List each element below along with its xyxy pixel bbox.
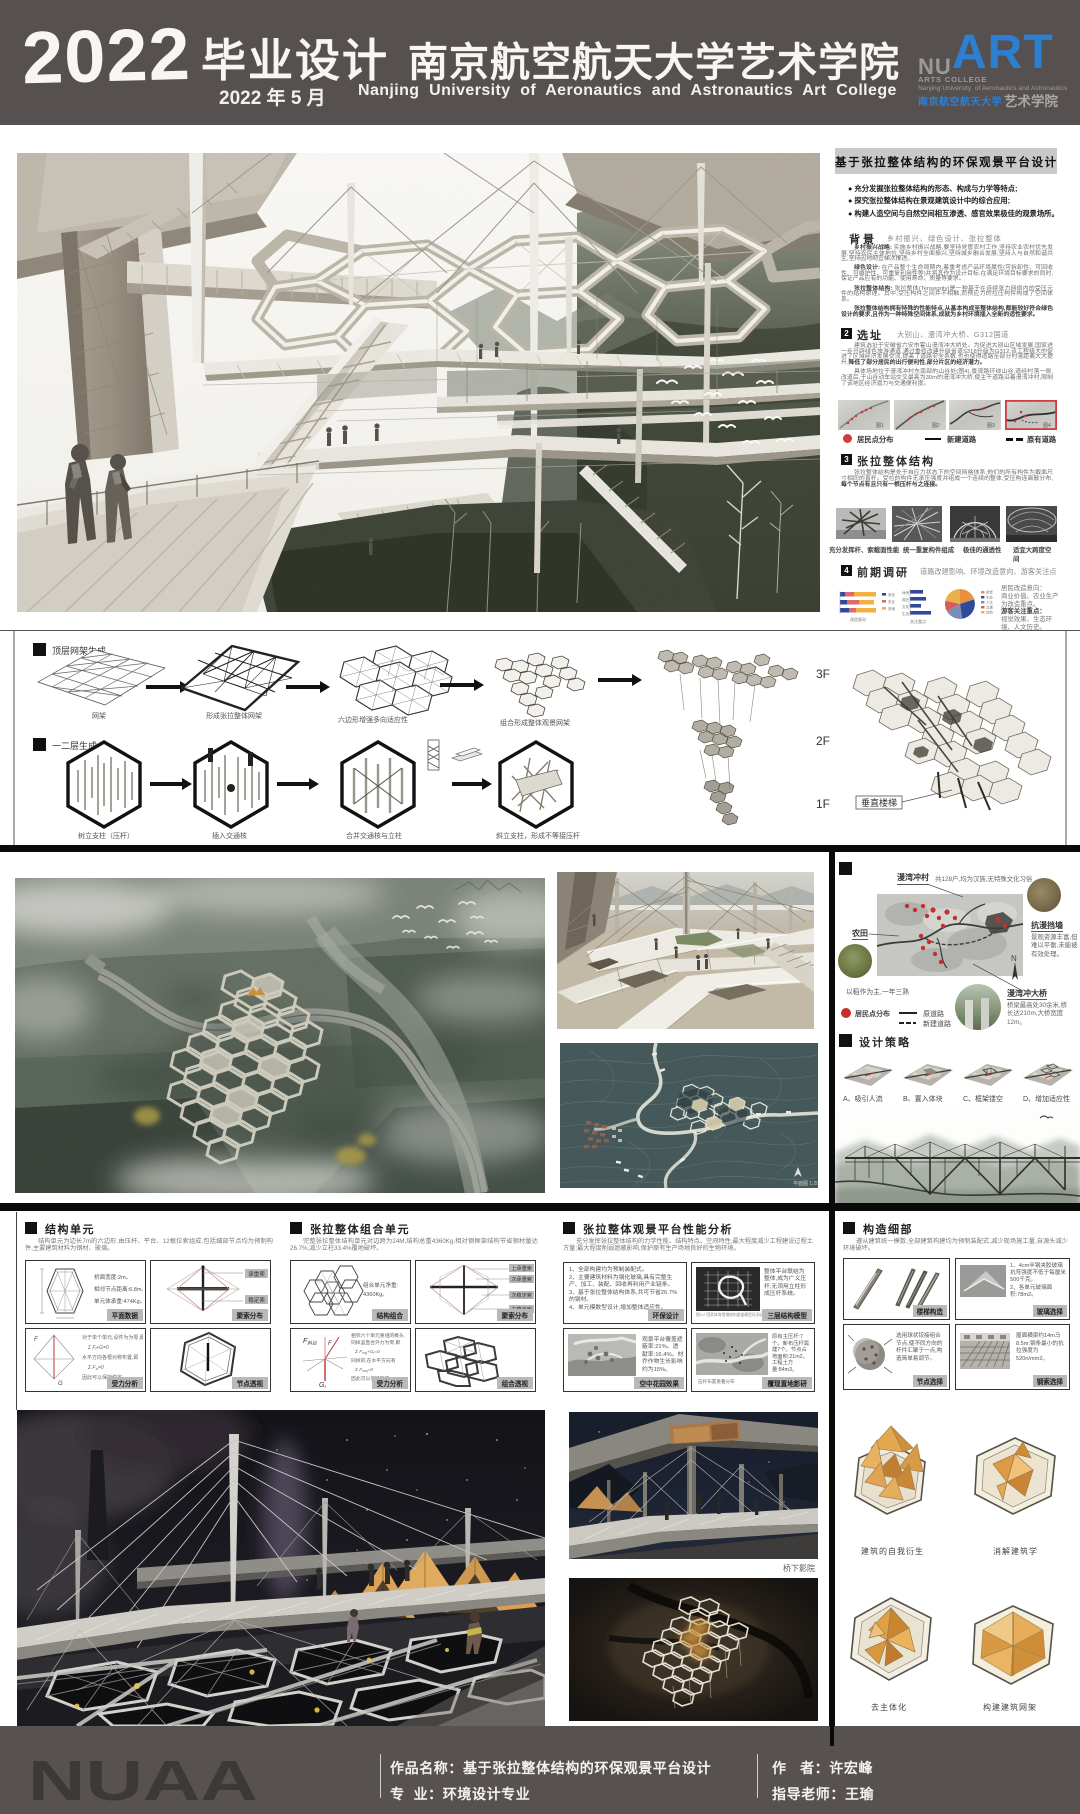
svg-text:组合单元净重:: 组合单元净重:: [363, 1281, 399, 1289]
svg-text:F: F: [34, 1337, 38, 1343]
svg-text:1F: 1F: [816, 797, 830, 811]
svg-text:F斜边: F斜边: [303, 1338, 317, 1346]
svg-text:同样竖直合外力为零,即: 同样竖直合外力为零,即: [351, 1339, 401, 1346]
svg-text:休闲: 休闲: [902, 590, 910, 595]
svg-text:垂直楼梯: 垂直楼梯: [861, 797, 897, 808]
svg-text:形成张拉整体网架: 形成张拉整体网架: [206, 711, 262, 720]
svg-text:G: G: [58, 1381, 63, 1387]
svg-text:组合形成整体观景网架: 组合形成整体观景网架: [500, 718, 570, 727]
svg-text:观光: 观光: [902, 597, 910, 602]
svg-text:网架: 网架: [92, 712, 106, 720]
svg-text:人文: 人文: [986, 600, 993, 605]
svg-text:生态: 生态: [986, 595, 993, 600]
svg-text:同样的,在水平方向有: 同样的,在水平方向有: [351, 1357, 396, 1364]
svg-text:相邻六个单元重组的榫头,: 相邻六个单元重组的榫头,: [351, 1332, 405, 1339]
svg-text:3F: 3F: [816, 667, 830, 681]
svg-text:2F: 2F: [816, 734, 830, 748]
svg-text:Σ Fxi=0: Σ Fxi=0: [87, 1365, 104, 1371]
svg-text:商业: 商业: [888, 592, 896, 597]
svg-text:斜立支柱，形成不等接压杆: 斜立支柱，形成不等接压杆: [496, 831, 580, 840]
svg-text:图1: 图1: [876, 423, 884, 429]
svg-text:图3: 图3: [987, 423, 995, 429]
svg-text:六边形增强多向适应性: 六边形增强多向适应性: [338, 715, 408, 724]
svg-text:交通: 交通: [986, 605, 993, 610]
svg-text:Σ Fi+G=0: Σ Fi+G=0: [87, 1345, 109, 1351]
svg-text:对于单个单元,设件为为零,即: 对于单个单元,设件为为零,即: [82, 1334, 143, 1341]
svg-text:Σ Fxeq=0: Σ Fxeq=0: [354, 1367, 373, 1373]
svg-text:水平方向各根对称布置,即: 水平方向各根对称布置,即: [82, 1354, 138, 1361]
svg-text:Σ Fmg+Gt=0: Σ Fmg+Gt=0: [354, 1349, 380, 1355]
svg-text:视觉: 视觉: [986, 590, 993, 595]
svg-text:桥面宽度:2m。: 桥面宽度:2m。: [94, 1273, 131, 1281]
svg-text:关注重点: 关注重点: [910, 618, 926, 624]
svg-text:改造意向: 改造意向: [850, 616, 866, 622]
svg-text:树立支柱（压杆）: 树立支柱（压杆）: [78, 831, 134, 840]
svg-text:其他: 其他: [888, 606, 896, 611]
svg-text:图4: 图4: [1043, 423, 1051, 429]
svg-text:合并交通核与立柱: 合并交通核与立柱: [346, 831, 402, 840]
svg-text:其他: 其他: [986, 610, 993, 615]
svg-text:农业: 农业: [888, 599, 896, 604]
svg-text:F: F: [328, 1341, 332, 1347]
svg-text:相邻节点距离:6.8m。: 相邻节点距离:6.8m。: [94, 1285, 143, 1293]
svg-text:生态: 生态: [902, 611, 910, 616]
svg-text:单元体承重:474Kg。: 单元体承重:474Kg。: [94, 1297, 143, 1305]
svg-text:文化: 文化: [902, 604, 910, 609]
svg-text:图2: 图2: [932, 423, 940, 429]
svg-text:插入交通核: 插入交通核: [212, 831, 247, 840]
svg-text:平面图 1:2000: 平面图 1:2000: [793, 1181, 818, 1187]
svg-text:Gt: Gt: [319, 1382, 326, 1388]
svg-text:4360Kg。: 4360Kg。: [363, 1292, 388, 1298]
